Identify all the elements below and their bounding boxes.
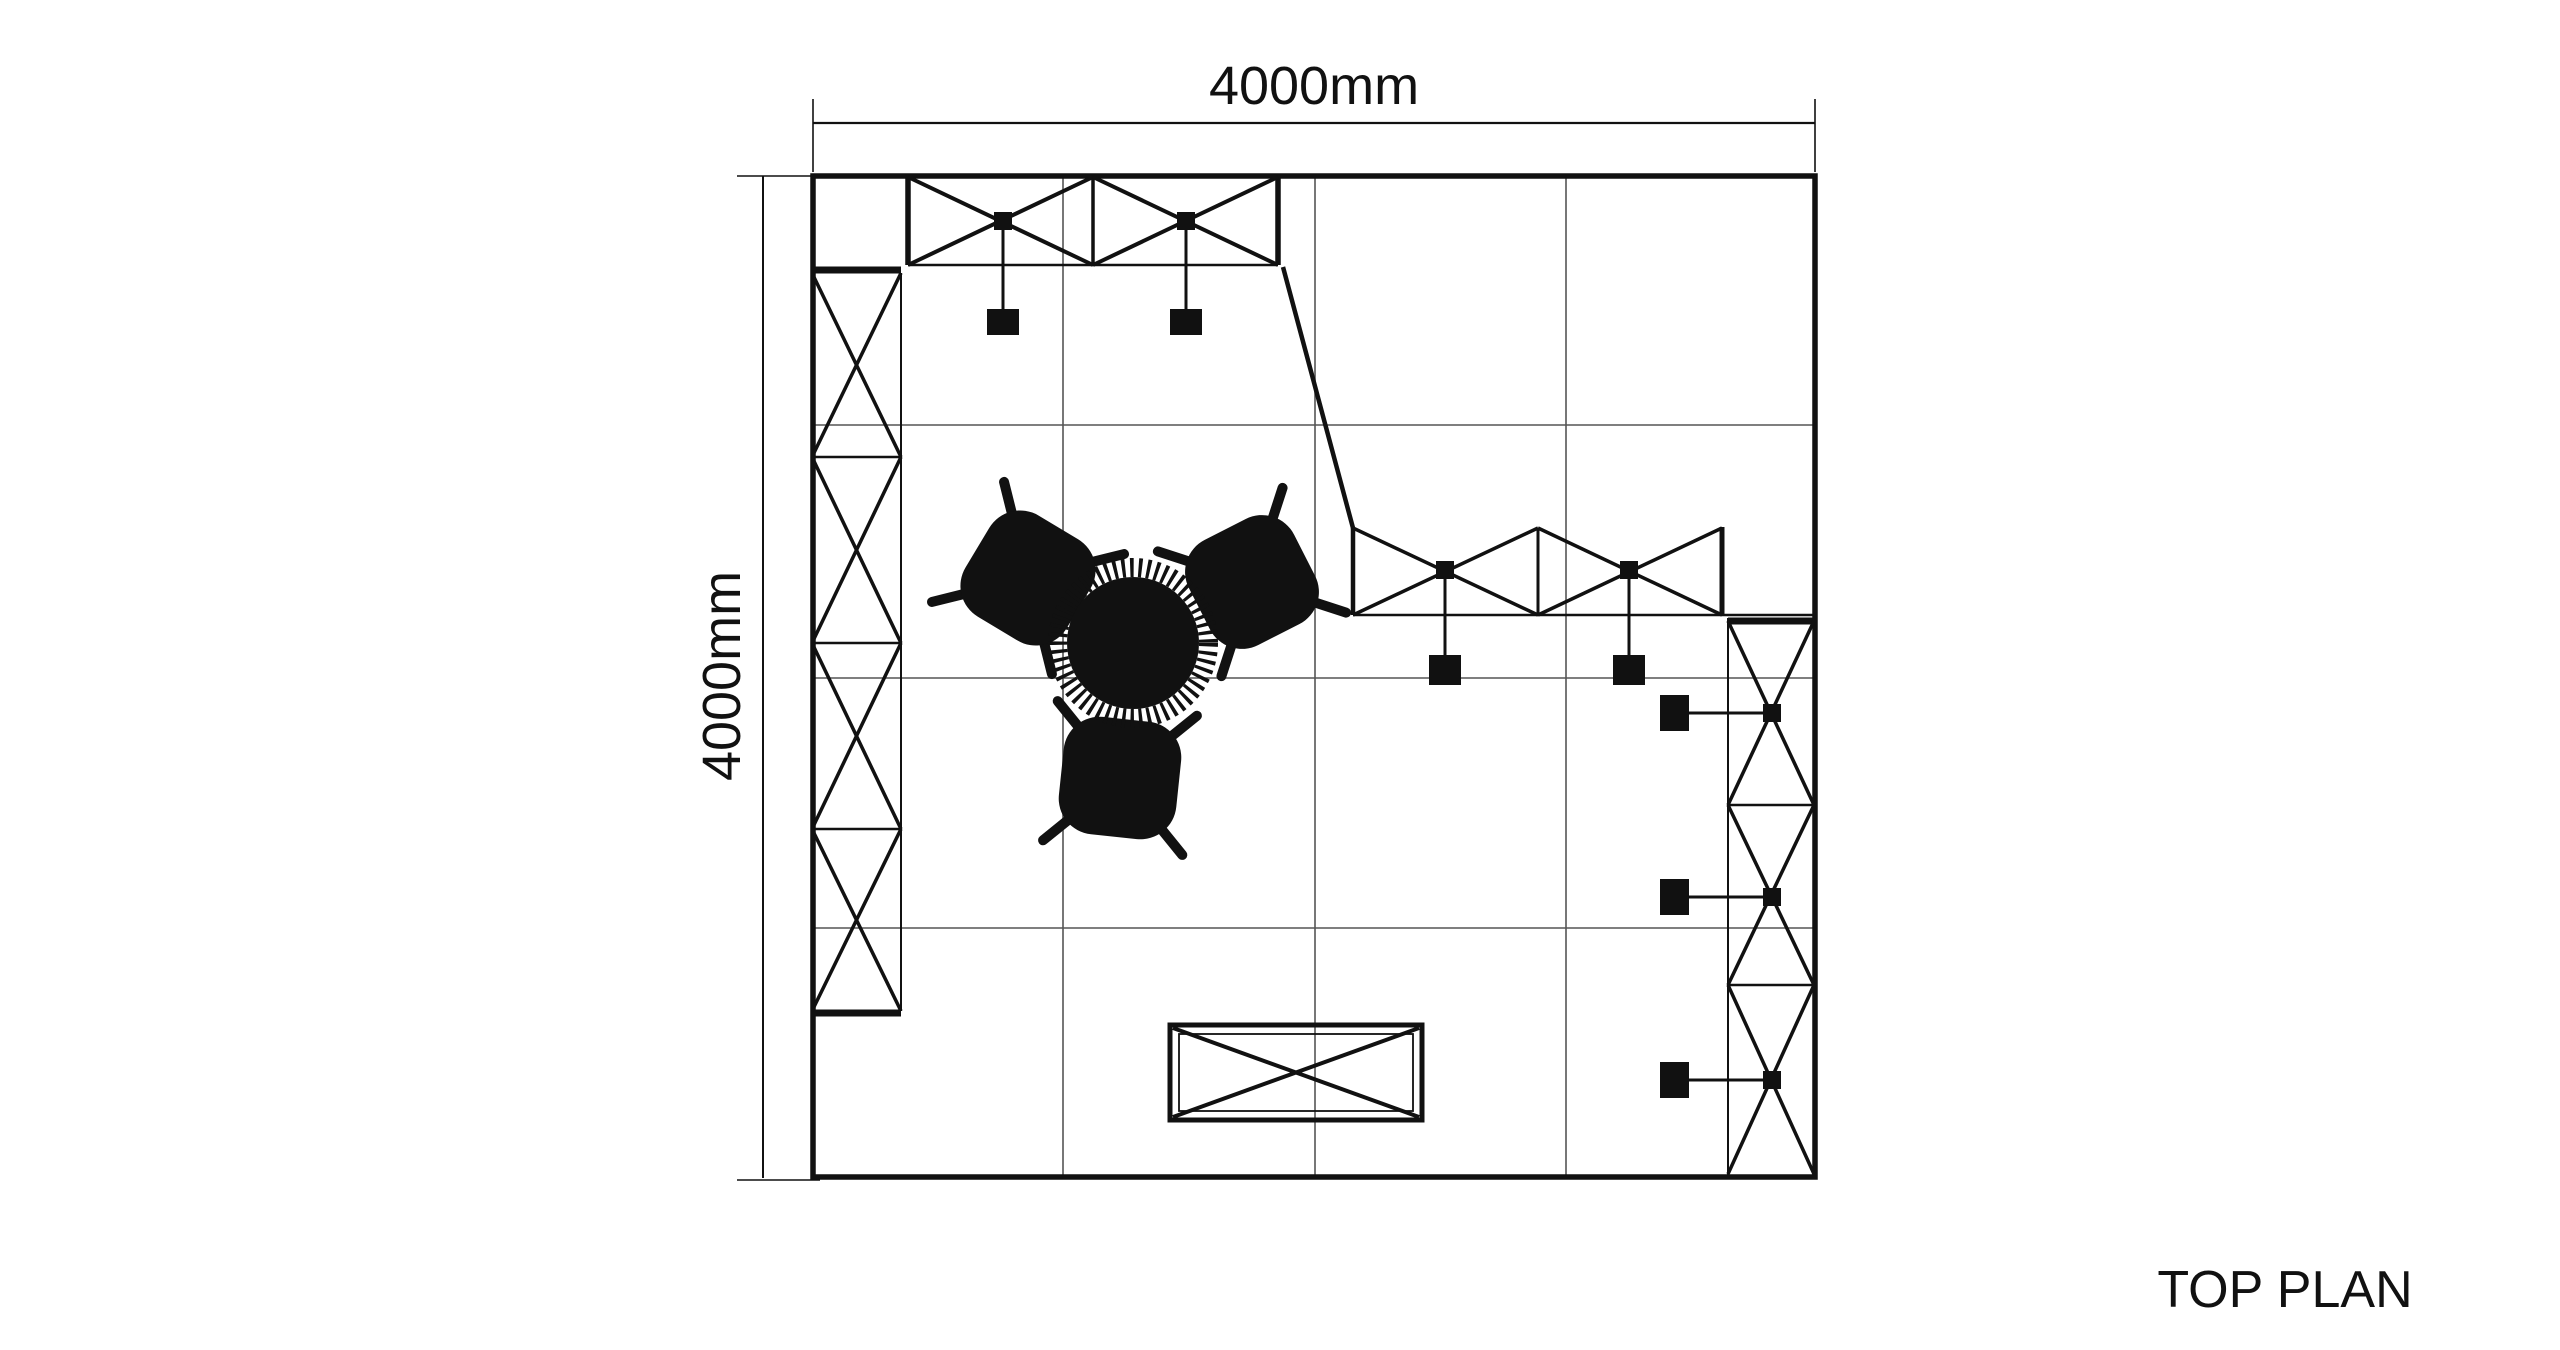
top-plan-sheet: 4000mm 4000mm (0, 0, 2560, 1350)
meeting-table (1058, 568, 1209, 719)
table-top (1067, 577, 1199, 709)
wall-truss-right (1660, 618, 1814, 1176)
truss-node (1620, 561, 1638, 579)
chair-leg (1043, 816, 1069, 842)
truss-node (1177, 212, 1195, 230)
reception-counter (1170, 1025, 1422, 1120)
truss-node (1763, 1071, 1781, 1089)
spotlight (1613, 655, 1645, 685)
left-dimension-label: 4000mm (692, 571, 752, 781)
chair-bottom (1043, 701, 1197, 855)
truss-node (1763, 704, 1781, 722)
chair-leg (1158, 829, 1184, 855)
chair-leg (1055, 701, 1081, 727)
chair-seat (1055, 713, 1185, 843)
left-dimension: 4000mm (692, 176, 820, 1180)
top-dimension: 4000mm (813, 56, 1815, 172)
chair-leg (992, 482, 1025, 515)
spotlight (987, 309, 1019, 335)
truss-node (994, 212, 1012, 230)
spotlight (1660, 1062, 1689, 1098)
spotlight (1429, 655, 1461, 685)
spotlight (1660, 695, 1689, 731)
drawing-title: TOP PLAN (2157, 1261, 2412, 1319)
spotlight (1170, 309, 1202, 335)
wall-truss-left (812, 270, 901, 1013)
ceiling-truss-mid (1353, 527, 1814, 685)
truss-node (1763, 888, 1781, 906)
chair-leg (1171, 713, 1197, 739)
spotlight (1660, 879, 1689, 915)
top-plan-drawing: 4000mm 4000mm (0, 0, 2560, 1350)
top-dimension-label: 4000mm (1209, 56, 1419, 116)
ceiling-truss-top (908, 177, 1278, 335)
truss-node (1436, 561, 1454, 579)
chair-leg (932, 581, 965, 614)
diagonal-wall (1283, 267, 1353, 528)
